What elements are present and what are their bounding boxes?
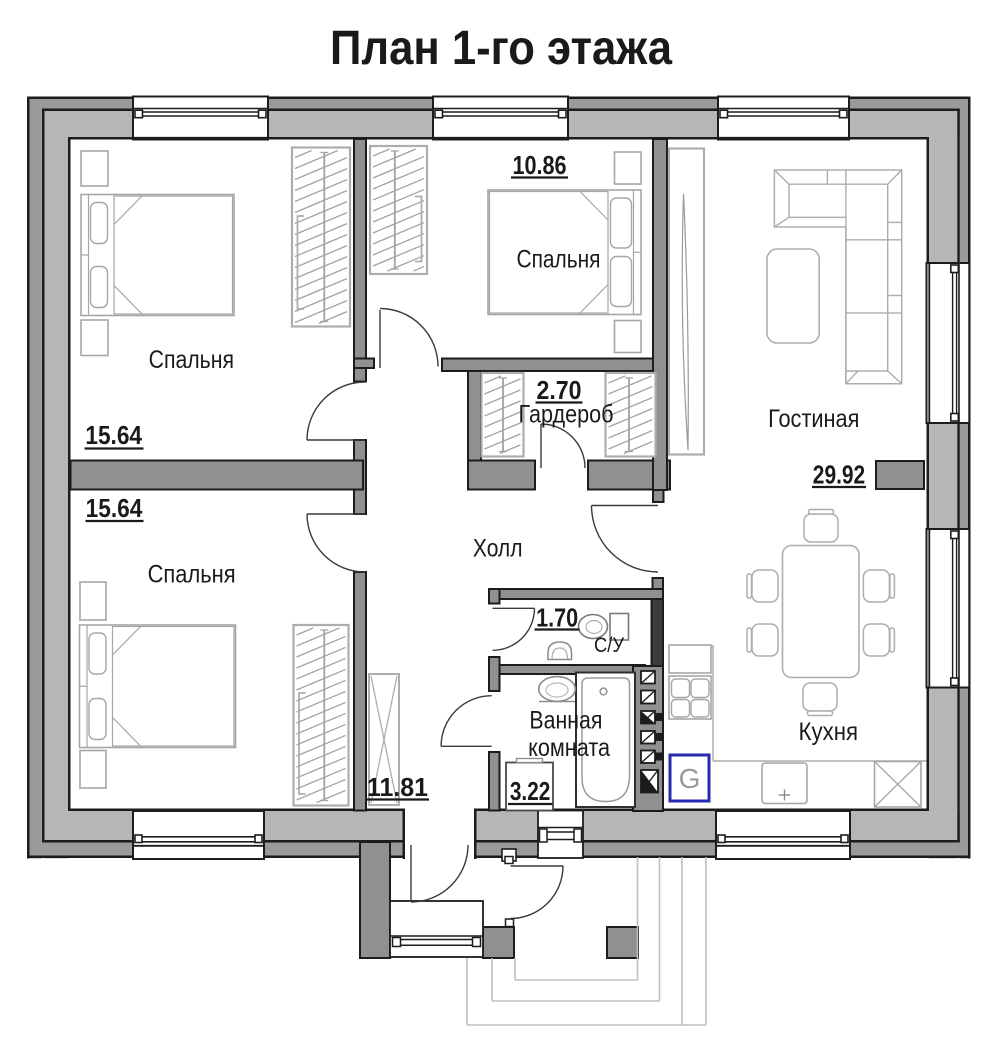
svg-text:2.70: 2.70 [537, 375, 582, 405]
svg-text:Спальня: Спальня [148, 561, 236, 589]
svg-text:Спальня: Спальня [149, 346, 234, 374]
svg-text:План 1-го этажа: План 1-го этажа [330, 22, 672, 75]
svg-text:Спальня: Спальня [517, 246, 601, 274]
svg-text:1.70: 1.70 [536, 603, 578, 633]
svg-text:Ванная: Ванная [529, 707, 602, 735]
svg-text:10.86: 10.86 [512, 150, 566, 180]
svg-text:Гостиная: Гостиная [768, 405, 859, 433]
svg-text:15.64: 15.64 [85, 420, 142, 450]
svg-text:15.64: 15.64 [86, 493, 143, 523]
svg-text:G: G [679, 763, 701, 794]
svg-text:3.22: 3.22 [510, 776, 550, 806]
svg-text:комната: комната [528, 734, 610, 762]
svg-text:29.92: 29.92 [813, 460, 865, 490]
svg-text:Холл: Холл [473, 535, 523, 563]
svg-text:Кухня: Кухня [799, 718, 859, 746]
svg-text:11.81: 11.81 [367, 772, 428, 802]
svg-text:С/У: С/У [594, 634, 625, 657]
